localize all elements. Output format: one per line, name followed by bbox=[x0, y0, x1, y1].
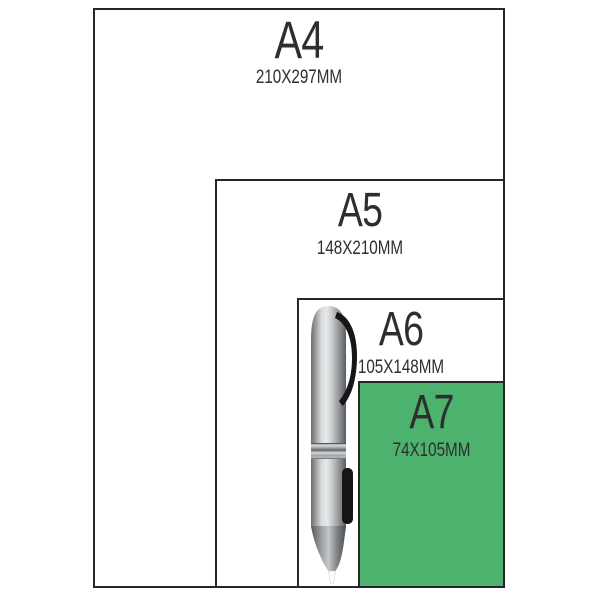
pen-band-edge-bottom bbox=[311, 458, 346, 459]
pen-band-edge-top bbox=[311, 443, 346, 444]
sheet-a4-dimensions-label: 210X297MM bbox=[136, 68, 462, 87]
pen-lower-barrel bbox=[311, 459, 346, 526]
sheet-a5-size-label: A5 bbox=[248, 187, 471, 235]
pen-image bbox=[306, 300, 362, 592]
pen-cap bbox=[311, 306, 346, 443]
sheet-a7: A7 74X105MM bbox=[358, 381, 505, 588]
sheet-a5-dimensions-label: 148X210MM bbox=[246, 239, 475, 258]
paper-size-diagram: A4 210X297MM A5 148X210MM A6 105X148MM A… bbox=[0, 0, 600, 600]
sheet-a7-dimensions-label: 74X105MM bbox=[374, 441, 488, 460]
sheet-a7-size-label: A7 bbox=[376, 389, 488, 437]
pen-tip bbox=[329, 571, 336, 584]
sheet-a4-size-label: A4 bbox=[140, 14, 458, 67]
pen-cone bbox=[311, 526, 346, 571]
pen-band bbox=[311, 443, 346, 459]
pen-side-button bbox=[342, 468, 353, 524]
